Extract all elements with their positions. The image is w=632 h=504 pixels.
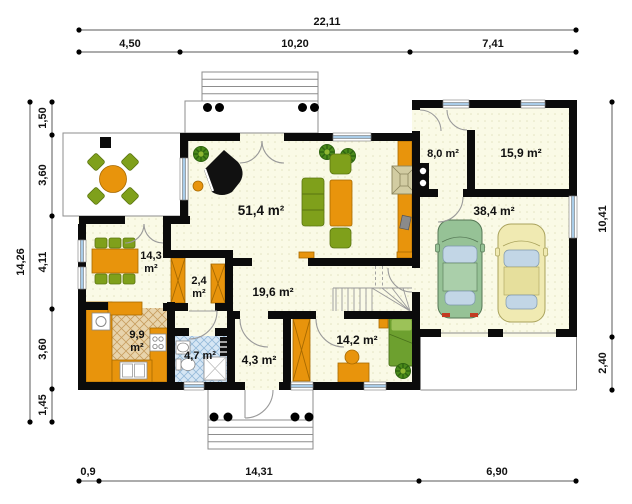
terrace-table-icon (100, 166, 127, 193)
plant-icon (396, 364, 411, 379)
dim-bottom-seg2: 14,31 (245, 466, 273, 478)
window-icon (521, 100, 545, 108)
bedroom-label: 14,2 m² (336, 333, 377, 347)
desk-icon (338, 363, 369, 382)
washer-icon (92, 313, 110, 330)
pantry-label: 2,4 (191, 275, 207, 287)
dimensions-bottom: 0,9 14,31 6,90 (76, 466, 578, 484)
sofa-icon (302, 178, 324, 226)
window-icon (184, 382, 204, 390)
window-icon (333, 133, 371, 141)
utility-room-label: 8,0 m² (427, 148, 459, 160)
window-icon (78, 267, 86, 289)
dimensions-left: 14,26 1,50 3,60 4,11 3,60 1,45 (15, 99, 55, 424)
hall-label: 19,6 m² (252, 285, 293, 299)
dining-chair-icon (95, 238, 107, 248)
pillow-icon (392, 320, 412, 331)
dim-right-seg2: 2,40 (597, 352, 609, 373)
south-porch (208, 390, 314, 449)
window-icon (78, 240, 86, 262)
window-icon (364, 382, 386, 390)
terrace-post (100, 137, 111, 148)
toilet-tank (176, 359, 181, 370)
garage-label: 38,4 m² (473, 204, 514, 218)
plant-icon (194, 147, 209, 162)
front-door-arc (245, 390, 273, 418)
dining-chair-icon (95, 274, 107, 284)
dim-bottom-seg1: 0,9 (80, 466, 95, 478)
dim-left-seg3: 4,11 (37, 252, 49, 273)
piano-stool-icon (193, 181, 203, 191)
radiator-icon (397, 252, 414, 258)
desk-chair-icon (345, 350, 359, 364)
armchair-icon (330, 228, 351, 248)
dim-top-seg2: 10,20 (281, 38, 309, 50)
north-porch (185, 72, 319, 133)
taillight (442, 313, 450, 317)
room2-label: 15,9 m² (500, 146, 541, 160)
dim-left-total: 14,26 (15, 248, 27, 276)
porch-columns (203, 103, 319, 112)
taillight (470, 313, 478, 317)
driveway (421, 337, 577, 390)
sink-icon (120, 362, 147, 379)
nightstand-icon (379, 319, 388, 328)
dim-bottom-seg3: 6,90 (486, 466, 507, 478)
radiator-icon (299, 252, 314, 258)
dining-table-icon (92, 249, 138, 273)
dining-room-label: 14,3 (140, 250, 161, 262)
dining-chair-icon (109, 238, 121, 248)
kitchen-unit: m² (130, 342, 144, 354)
dining-room-unit: m² (144, 263, 158, 275)
car-yellow-icon (496, 224, 548, 322)
boiler-icon (417, 163, 429, 193)
dim-top-seg1: 4,50 (119, 38, 140, 50)
dim-left-seg4: 3,60 (37, 338, 49, 359)
pantry-unit: m² (192, 288, 206, 300)
dim-left-seg5: 1,45 (37, 394, 49, 415)
window-icon (569, 196, 577, 238)
terrace-set (87, 137, 139, 205)
dining-set (92, 238, 138, 284)
kitchen-label: 9,9 (129, 329, 144, 341)
garage-wing-floor (412, 100, 577, 337)
dining-chair-icon (109, 274, 121, 284)
bathroom-label: 4,7 m² (184, 350, 216, 362)
dim-right-seg1: 10,41 (597, 205, 609, 233)
kitchen-counter (108, 302, 142, 315)
dim-top-total: 22,11 (314, 16, 341, 28)
wall-unit-icon (398, 141, 412, 261)
window-icon (180, 158, 188, 200)
dimensions-right: 10,41 2,40 (597, 99, 615, 392)
dining-chair-icon (123, 274, 135, 284)
window-icon (291, 382, 313, 390)
dim-left-seg2: 3,60 (37, 164, 49, 185)
floor-plan: 51,4 m² 14,3 m² 2,4 m² 19,6 m² 9,9 m² 4,… (0, 0, 632, 504)
dimensions-top: 22,11 4,50 10,20 7,41 (76, 16, 578, 55)
window-icon (443, 100, 469, 108)
car-green-icon (436, 220, 485, 318)
coffee-table-icon (330, 180, 352, 226)
living-room-label: 51,4 m² (238, 203, 285, 218)
armchair-icon (330, 154, 351, 174)
cooktop-icon (150, 334, 166, 351)
vestibule-label: 4,3 m² (242, 353, 277, 367)
dim-top-seg3: 7,41 (482, 38, 503, 50)
dim-left-seg1: 1,50 (37, 107, 49, 128)
floor-plan-drawing: 51,4 m² 14,3 m² 2,4 m² 19,6 m² 9,9 m² 4,… (0, 0, 632, 504)
